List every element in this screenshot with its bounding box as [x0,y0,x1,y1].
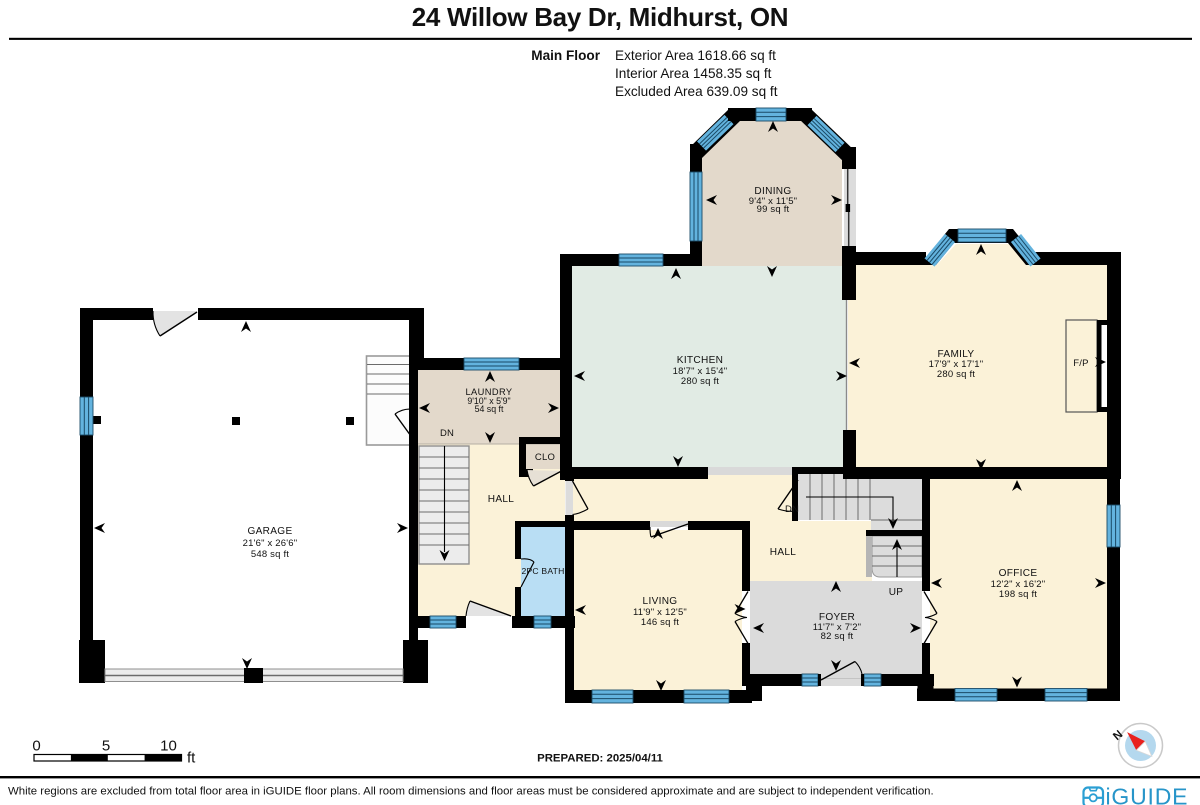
svg-text:KITCHEN: KITCHEN [677,355,723,366]
svg-text:Exterior Area 1618.66 sq ft: Exterior Area 1618.66 sq ft [615,48,776,63]
svg-text:21'6" x 26'6": 21'6" x 26'6" [243,538,298,549]
svg-text:0: 0 [32,738,40,755]
svg-text:10: 10 [160,738,177,755]
svg-text:Interior Area 1458.35 sq ft: Interior Area 1458.35 sq ft [615,66,772,81]
svg-text:PREPARED: 2025/04/11: PREPARED: 2025/04/11 [537,753,663,765]
svg-text:280 sq ft: 280 sq ft [937,369,975,380]
svg-text:HALL: HALL [488,494,515,505]
svg-text:HALL: HALL [770,547,797,558]
svg-text:99 sq ft: 99 sq ft [757,204,790,215]
svg-text:OFFICE: OFFICE [999,568,1038,579]
svg-text:24 Willow Bay Dr, Midhurst, ON: 24 Willow Bay Dr, Midhurst, ON [412,2,789,32]
svg-text:DN: DN [440,428,454,439]
svg-text:DN: DN [785,504,799,515]
svg-text:548 sq ft: 548 sq ft [251,549,289,560]
svg-text:iGUIDE: iGUIDE [1106,784,1189,805]
svg-text:146 sq ft: 146 sq ft [641,617,679,628]
svg-text:CLO: CLO [535,452,555,463]
svg-text:2PC BATH: 2PC BATH [522,566,565,576]
svg-text:GARAGE: GARAGE [248,526,293,537]
svg-text:198 sq ft: 198 sq ft [999,589,1037,600]
svg-text:LIVING: LIVING [643,596,678,607]
svg-text:Excluded Area 639.09 sq ft: Excluded Area 639.09 sq ft [615,84,778,99]
svg-text:F/P: F/P [1073,358,1088,369]
svg-text:White regions are excluded fro: White regions are excluded from total fl… [8,786,934,798]
svg-text:82 sq ft: 82 sq ft [821,631,854,642]
svg-text:280 sq ft: 280 sq ft [681,376,719,387]
svg-text:UP: UP [889,587,904,598]
svg-text:5: 5 [102,738,110,755]
svg-text:54 sq ft: 54 sq ft [475,404,504,414]
svg-text:ft: ft [187,750,196,767]
svg-text:Main Floor: Main Floor [531,48,600,63]
